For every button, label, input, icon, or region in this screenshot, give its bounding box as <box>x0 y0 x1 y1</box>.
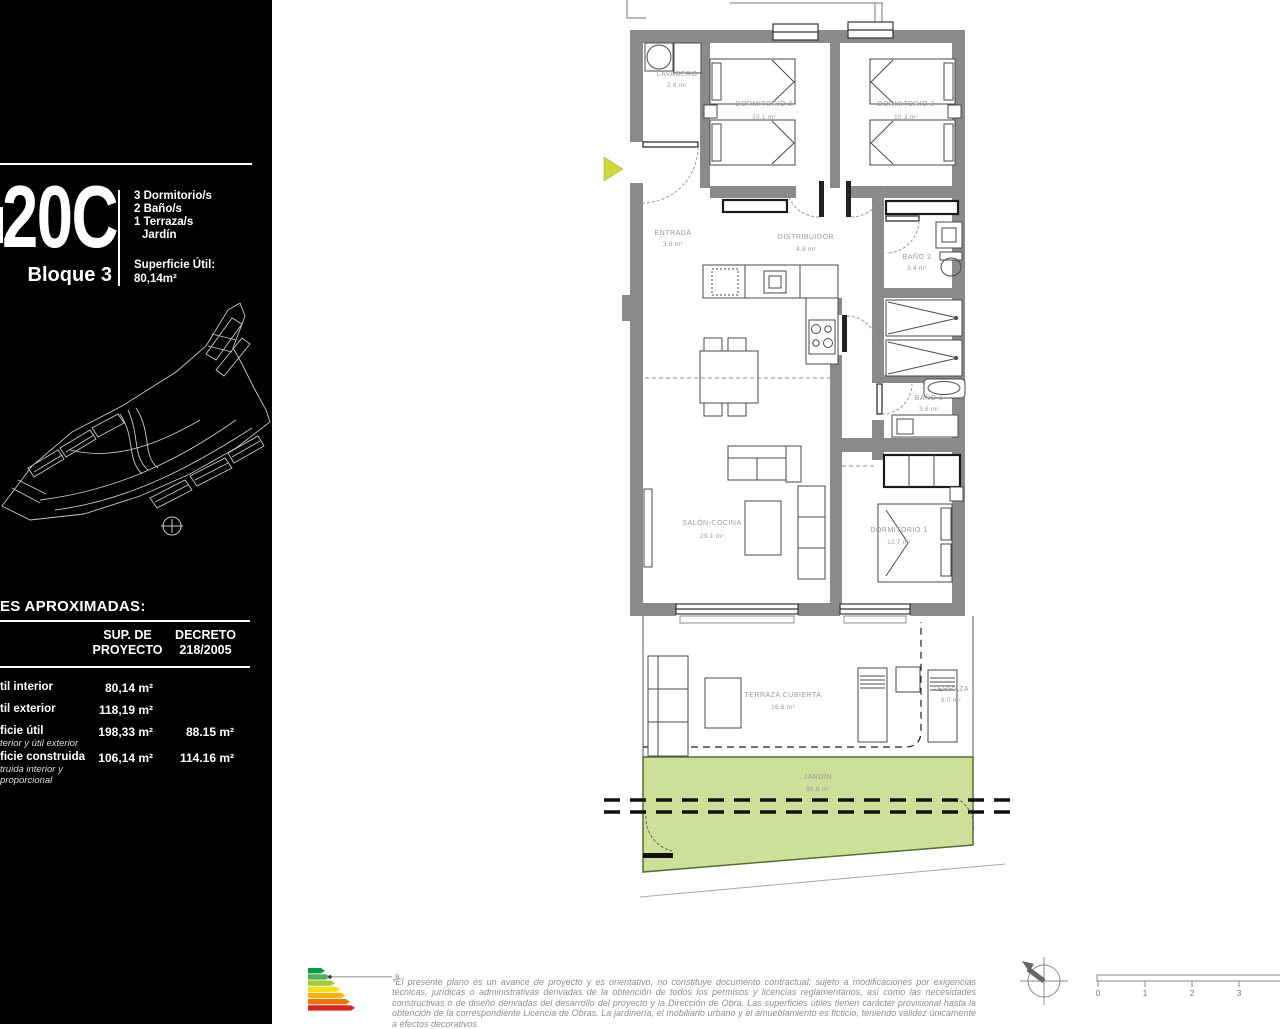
surface-util-value: 80,14m² <box>134 273 215 287</box>
ground-line <box>640 864 1005 897</box>
row-proyecto-value: 80,14 m² <box>60 681 153 695</box>
room-label-terraza: TERRAZA <box>933 686 969 693</box>
room-label-dormitorio3: DORMITORIO 3 <box>735 101 792 108</box>
svg-text:10.3 m²: 10.3 m² <box>894 114 918 121</box>
areas-heading: ES APROXIMADAS: <box>0 598 146 615</box>
scale-tick-label: 1 <box>1143 988 1148 998</box>
feature-bedrooms: 3 Dormitorio/s <box>134 190 212 203</box>
svg-text:3.6 m²: 3.6 m² <box>663 241 683 248</box>
row-sublabel: proporcional <box>0 775 52 786</box>
terrace-boundary <box>643 616 973 757</box>
block-label: Bloque 3 <box>0 264 112 287</box>
vertical-divider <box>118 190 120 286</box>
col-header-decreto: DECRETO 218/2005 <box>163 628 248 658</box>
property-lines <box>627 0 883 30</box>
row-label: til exterior <box>0 703 56 715</box>
compass-icon <box>1020 952 1090 1014</box>
row-label: ficie útil <box>0 725 43 737</box>
sidebar-top-rule <box>0 163 252 165</box>
entrance-marker-arrow <box>604 157 623 181</box>
table-rule-top <box>0 620 250 622</box>
row-sublabel: terior y útil exterior <box>0 738 78 749</box>
room-label-bano2: BAÑO 2 <box>903 252 932 261</box>
room-label-salon: SALÓN-COCINA <box>682 518 741 527</box>
feature-terrace: 1 Terraza/s <box>134 216 212 229</box>
floor-plan: LAVADERO 2.6 m² DORMITORIO 3 10.1 m² DOR… <box>580 0 1020 920</box>
scale-tick-label: 3 <box>1237 988 1242 998</box>
surface-util: Superficie Útil: 80,14m² <box>134 259 215 286</box>
features-list: 3 Dormitorio/s 2 Baño/s 1 Terraza/s Jard… <box>134 190 212 242</box>
sidebar-panel: 20C Bloque 3 3 Dormitorio/s 2 Baño/s 1 T… <box>0 0 272 1024</box>
svg-text:10.1 m²: 10.1 m² <box>752 114 776 121</box>
scale-bar: 0 1 2 3 <box>1088 960 1280 1005</box>
col-header-proyecto: SUP. DE PROYECTO <box>85 628 170 658</box>
room-label-terraza-cubierta: TERRAZA CUBIERTA <box>745 692 822 699</box>
disclaimer-text: *El presente plano es un avance de proye… <box>392 977 976 1029</box>
table-rule-header <box>0 666 250 668</box>
surface-util-label: Superficie Útil: <box>134 259 215 273</box>
room-label-dormitorio1: DORMITORIO 1 <box>870 527 927 534</box>
garden-wall-stub <box>643 853 673 858</box>
svg-text:3.4 m²: 3.4 m² <box>907 265 927 272</box>
unit-number: 20C <box>2 176 117 258</box>
svg-text:16.6 m²: 16.6 m² <box>771 704 795 711</box>
svg-text:3.6 m²: 3.6 m² <box>919 406 939 413</box>
site-compass-icon <box>161 517 183 535</box>
svg-text:8.0 m²: 8.0 m² <box>941 697 961 704</box>
room-label-jardin: JARDÍN <box>804 772 832 781</box>
row-proyecto-value: 198,33 m² <box>60 725 153 739</box>
row-proyecto-value: 118,19 m² <box>60 703 153 717</box>
row-decreto-value: 88.15 m² <box>160 725 234 739</box>
room-label-lavadero: LAVADERO <box>656 71 697 78</box>
row-sublabel: truida interior y <box>0 764 63 775</box>
svg-text:4.9 m²: 4.9 m² <box>796 246 816 253</box>
feature-garden: Jardín <box>142 229 212 242</box>
svg-text:12.7 m²: 12.7 m² <box>887 539 911 546</box>
feature-bathrooms: 2 Baño/s <box>134 203 212 216</box>
room-label-bano1: BAÑO 1 <box>915 393 944 402</box>
site-plan-illustration <box>0 298 272 548</box>
room-label-entrada: ENTRADA <box>655 230 692 237</box>
svg-text:2.6 m²: 2.6 m² <box>667 82 687 89</box>
svg-text:29.1 m²: 29.1 m² <box>700 533 724 540</box>
energy-rating-icon: B <box>306 966 402 1018</box>
row-proyecto-value: 106,14 m² <box>60 751 153 765</box>
room-label-distribuidor: DISTRIBUIDOR <box>778 234 834 241</box>
svg-text:96.8 m²: 96.8 m² <box>806 786 830 793</box>
room-label-dormitorio2: DORMITORIO 2 <box>877 101 934 108</box>
scale-tick-label: 2 <box>1190 988 1195 998</box>
unit-number-clipped-digit <box>0 207 3 243</box>
row-decreto-value: 114.16 m² <box>160 751 234 765</box>
scale-tick-label: 0 <box>1096 988 1101 998</box>
row-label: til interior <box>0 681 53 693</box>
